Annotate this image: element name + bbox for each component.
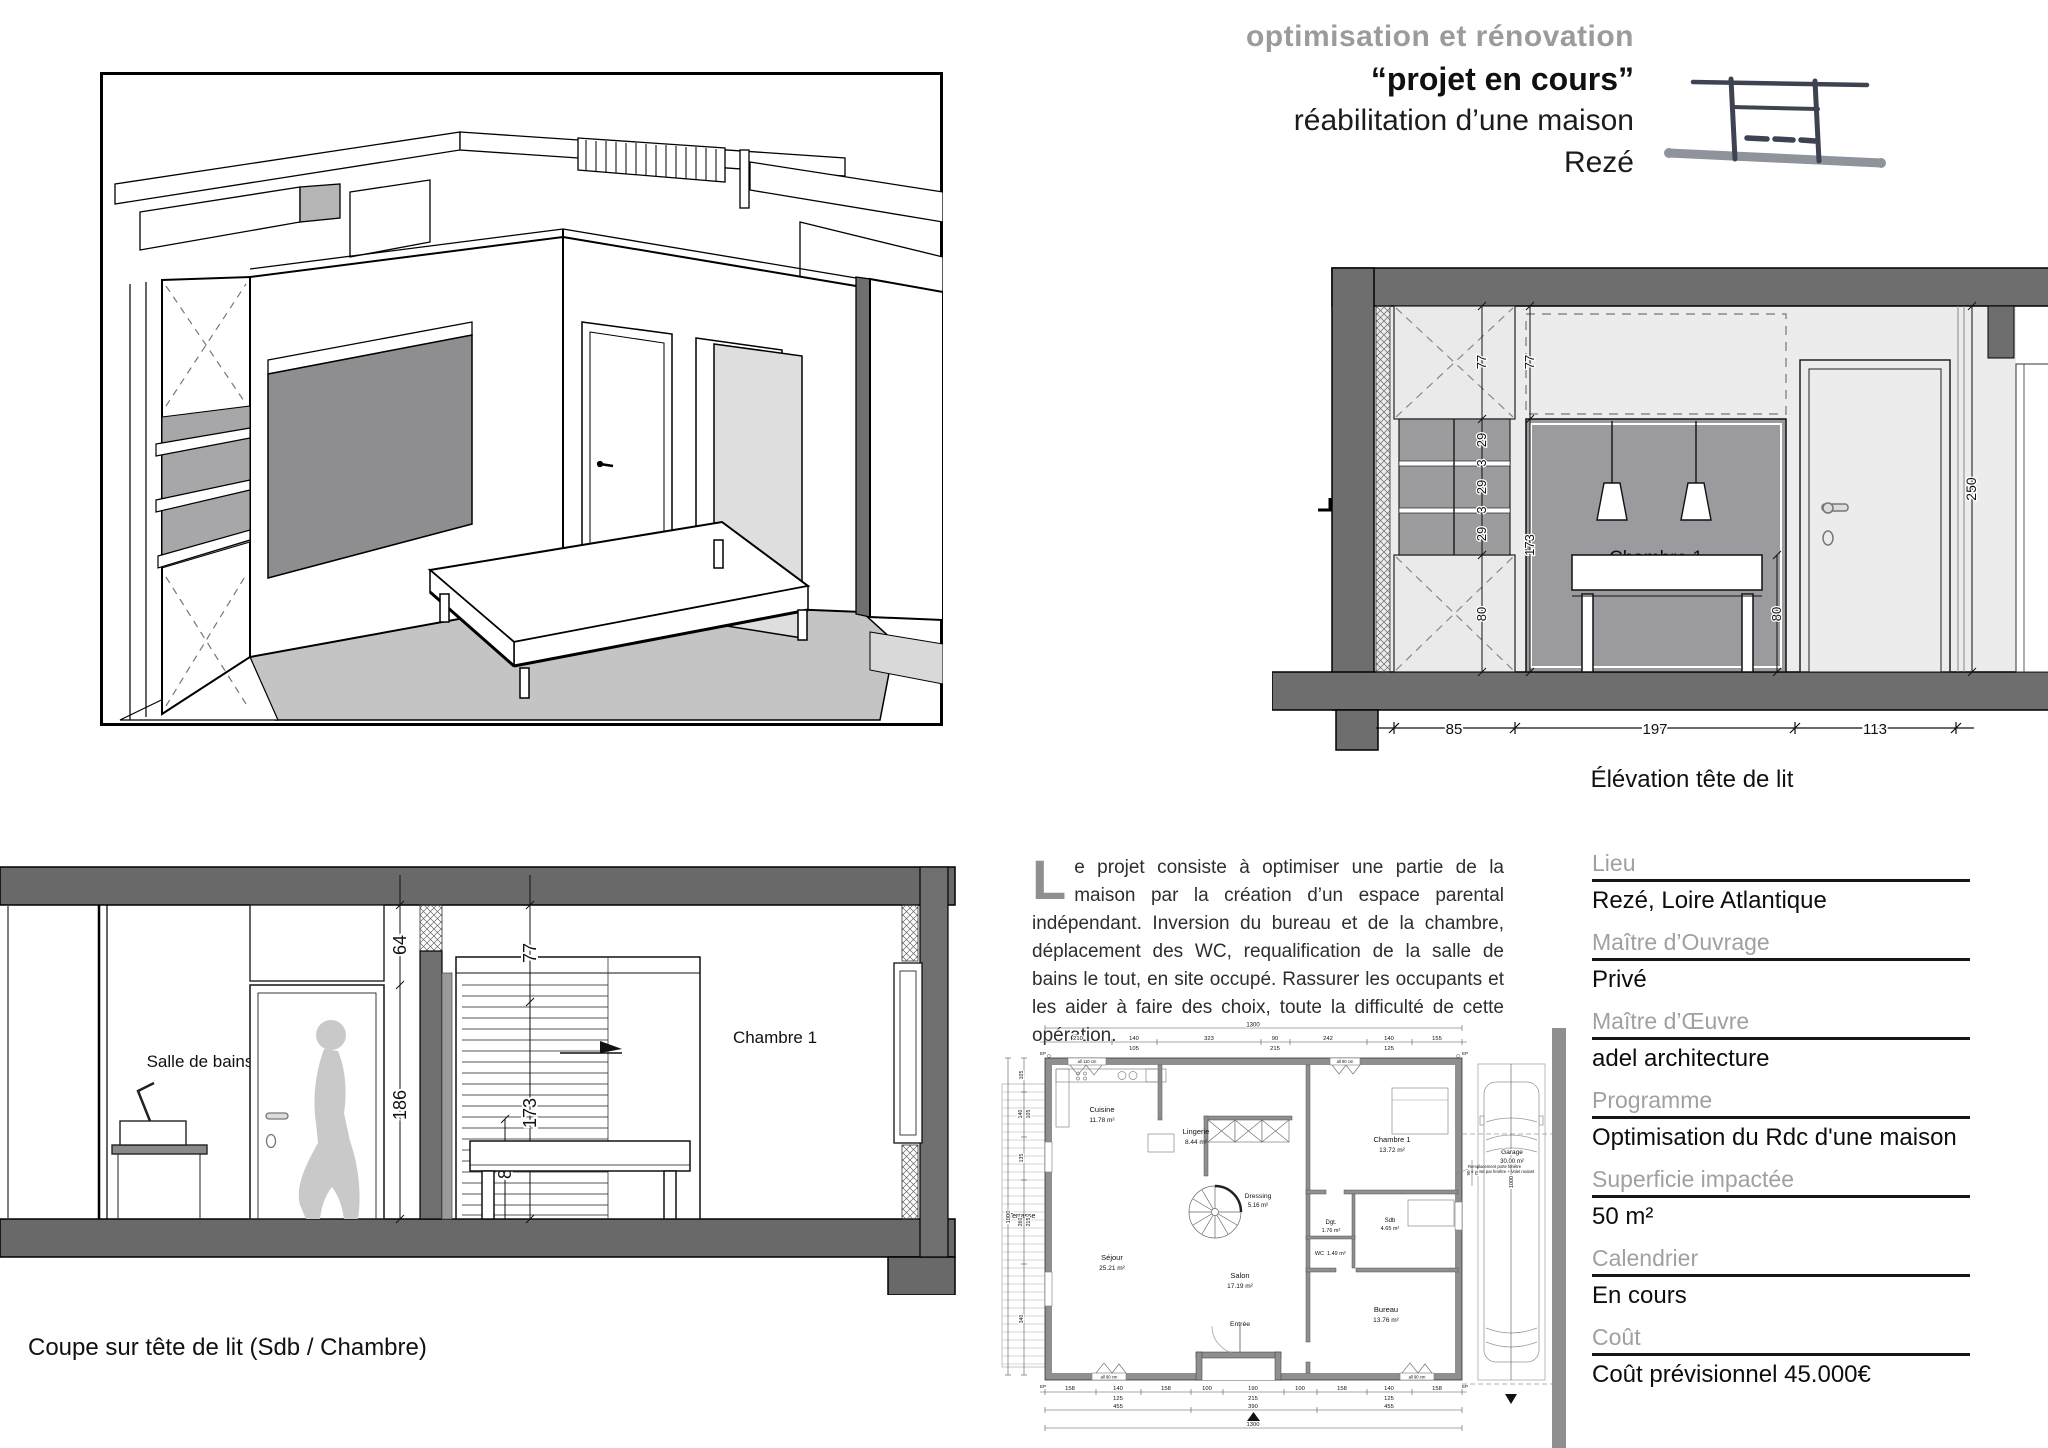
dim: 125 bbox=[1384, 1396, 1394, 1402]
dim: 113 bbox=[1863, 721, 1887, 738]
portfolio-page: { "header": { "line1": "optimisation et … bbox=[0, 0, 2048, 1448]
section-drawing: Salle de bains 64 186 bbox=[0, 845, 958, 1295]
floor-plan: 1000 Remplacement porte fenêtre existant… bbox=[1000, 1022, 1560, 1448]
room-name: Garage bbox=[1501, 1149, 1523, 1156]
info-label: Maître d’Ouvrage bbox=[1592, 929, 1970, 961]
room-name: Entrée bbox=[1230, 1321, 1250, 1328]
info-value: Privé bbox=[1592, 966, 1970, 994]
elevation-drawing: Chambre 1 77 29 3 29 3 29 80 77 173 bbox=[1272, 258, 2048, 758]
room-area: 17.19 m² bbox=[1227, 1283, 1253, 1290]
info-label: Calendrier bbox=[1592, 1245, 1970, 1277]
dim: 105 bbox=[1129, 1046, 1139, 1052]
dim: 90 bbox=[1272, 1036, 1278, 1042]
dim: 75 bbox=[1474, 1170, 1479, 1176]
window-note: all 90 cm bbox=[1337, 1059, 1354, 1064]
room-name: Bureau bbox=[1374, 1305, 1398, 1314]
room-name: Lingerie bbox=[1183, 1127, 1210, 1136]
info-item-superficie: Superficie impactée 50 m² bbox=[1592, 1166, 1970, 1231]
dim: 323 bbox=[1204, 1036, 1214, 1042]
room-name: WC bbox=[1315, 1251, 1324, 1257]
description-text: e projet consiste à optimiser une partie… bbox=[1032, 857, 1504, 1046]
dim: 90 bbox=[1466, 1170, 1471, 1176]
dim: 100 bbox=[1295, 1386, 1305, 1392]
dim: 173 bbox=[520, 1098, 540, 1128]
dim: 125 bbox=[1113, 1396, 1123, 1402]
info-value: En cours bbox=[1592, 1282, 1970, 1310]
ep-label: EP bbox=[1462, 1051, 1468, 1056]
room-area: 13.76 m² bbox=[1373, 1317, 1399, 1324]
project-info-list: Lieu Rezé, Loire Atlantique Maître d’Ouv… bbox=[1592, 850, 1970, 1403]
room-area: 1.49 m² bbox=[1327, 1251, 1346, 1257]
title-block: optimisation et rénovation “projet en co… bbox=[900, 16, 1634, 184]
ep-label: EP bbox=[1040, 1051, 1046, 1056]
dim: 390 bbox=[1248, 1404, 1258, 1410]
info-value: Coût prévisionnel 45.000€ bbox=[1592, 1361, 1970, 1389]
room-area: 1.76 m² bbox=[1322, 1228, 1341, 1234]
dim: 77 bbox=[1522, 355, 1537, 369]
dim: 140 bbox=[1018, 1110, 1024, 1119]
room-name: Salon bbox=[1230, 1271, 1249, 1280]
info-label: Coût bbox=[1592, 1324, 1970, 1356]
title-line-2: “projet en cours” bbox=[900, 58, 1634, 100]
title-line-1: optimisation et rénovation bbox=[900, 16, 1634, 58]
window-note: all 90 cm bbox=[1101, 1375, 1118, 1380]
info-value: Rezé, Loire Atlantique bbox=[1592, 887, 1970, 915]
info-label: Programme bbox=[1592, 1087, 1970, 1119]
info-item-programme: Programme Optimisation du Rdc d'une mais… bbox=[1592, 1087, 1970, 1152]
title-line-4: Rezé bbox=[900, 142, 1634, 184]
dim: 1000 bbox=[1006, 1211, 1012, 1224]
room-name: Dgt. bbox=[1325, 1220, 1336, 1226]
info-value: Optimisation du Rdc d'une maison bbox=[1592, 1124, 1970, 1152]
dim: 140 bbox=[1129, 1036, 1139, 1042]
dim: 250 bbox=[1963, 477, 1979, 501]
dim: 158 bbox=[1432, 1386, 1442, 1392]
dim: 80 bbox=[1769, 607, 1784, 621]
dim: 1300 bbox=[1246, 1023, 1260, 1029]
vertical-divider bbox=[1552, 1028, 1566, 1448]
dim: 155 bbox=[1432, 1036, 1442, 1042]
dim: 3 bbox=[1474, 459, 1489, 466]
dim: 100 bbox=[1202, 1386, 1212, 1392]
dim: 190 bbox=[1248, 1386, 1258, 1392]
dim: 215 bbox=[1026, 1218, 1032, 1227]
dim: 215 bbox=[1248, 1396, 1258, 1402]
room-name: Sdb bbox=[1385, 1218, 1396, 1224]
dim: 197 bbox=[1642, 721, 1667, 738]
room-name: Séjour bbox=[1101, 1253, 1123, 1262]
perspective-render bbox=[100, 72, 943, 726]
ep-label: EP bbox=[1462, 1384, 1468, 1389]
dim: 1000 bbox=[1509, 1176, 1515, 1188]
dim: 105 bbox=[1026, 1110, 1032, 1119]
info-item-calendrier: Calendrier En cours bbox=[1592, 1245, 1970, 1310]
room-name: Chambre 1 bbox=[1373, 1135, 1410, 1144]
info-item-maitre-oeuvre: Maître d’Œuvre adel architecture bbox=[1592, 1008, 1970, 1073]
dim: 158 bbox=[1065, 1386, 1075, 1392]
title-line-3: réabilitation d’une maison bbox=[900, 100, 1634, 142]
dim: 85 bbox=[1446, 721, 1463, 738]
dim: 215 bbox=[1270, 1046, 1280, 1052]
dim: 125 bbox=[1384, 1046, 1394, 1052]
window-note: all 110 cm bbox=[1078, 1059, 1097, 1064]
headboard-sketch-logo bbox=[1655, 45, 1905, 180]
dim: 455 bbox=[1113, 1404, 1123, 1410]
dim: 186 bbox=[390, 1090, 410, 1120]
info-item-cout: Coût Coût prévisionnel 45.000€ bbox=[1592, 1324, 1970, 1389]
dim: 29 bbox=[1474, 433, 1489, 447]
info-label: Maître d’Œuvre bbox=[1592, 1008, 1970, 1040]
dim: 158 bbox=[1337, 1386, 1347, 1392]
dim: 3 bbox=[1474, 506, 1489, 513]
room-area: 25.21 m² bbox=[1099, 1265, 1125, 1272]
window-note: all 90 cm bbox=[1409, 1375, 1426, 1380]
dim: 340 bbox=[1019, 1315, 1025, 1324]
dim: 29 bbox=[1474, 480, 1489, 494]
dim: 455 bbox=[1384, 1404, 1394, 1410]
room-area: 4.65 m² bbox=[1381, 1226, 1400, 1232]
info-item-maitre-ouvrage: Maître d’Ouvrage Privé bbox=[1592, 929, 1970, 994]
info-item-lieu: Lieu Rezé, Loire Atlantique bbox=[1592, 850, 1970, 915]
dim: 77 bbox=[1474, 355, 1489, 369]
info-label: Lieu bbox=[1592, 850, 1970, 882]
room-area: 5.16 m² bbox=[1248, 1203, 1268, 1209]
section-caption: Coupe sur tête de lit (Sdb / Chambre) bbox=[28, 1334, 427, 1362]
dim: 140 bbox=[1384, 1036, 1394, 1042]
info-value: adel architecture bbox=[1592, 1045, 1970, 1073]
dim: 80 bbox=[1474, 607, 1489, 621]
project-description: Le projet consiste à optimiser une parti… bbox=[1032, 854, 1504, 1050]
dim: 29 bbox=[1474, 527, 1489, 541]
info-label: Superficie impactée bbox=[1592, 1166, 1970, 1198]
room-area: 30.00 m² bbox=[1500, 1159, 1524, 1165]
drop-cap: L bbox=[1032, 857, 1066, 903]
dim: 173 bbox=[1522, 534, 1537, 556]
dim: 140 bbox=[1113, 1386, 1123, 1392]
room-area: 13.72 m² bbox=[1379, 1147, 1405, 1154]
dim: 242 bbox=[1323, 1036, 1333, 1042]
dim: 140 bbox=[1384, 1386, 1394, 1392]
section-bath-label: Salle de bains bbox=[147, 1052, 254, 1071]
section-room-label: Chambre 1 bbox=[733, 1028, 817, 1047]
room-name: Cuisine bbox=[1089, 1105, 1114, 1114]
dim: 260 bbox=[1018, 1218, 1024, 1227]
room-name: Dressing bbox=[1245, 1193, 1272, 1200]
dim: 105 bbox=[1019, 1071, 1025, 1080]
dim: 1300 bbox=[1247, 1422, 1260, 1428]
dim: 210 bbox=[1073, 1036, 1083, 1042]
room-area: 11.78 m² bbox=[1089, 1117, 1115, 1124]
dim: 158 bbox=[1161, 1386, 1171, 1392]
dim: 64 bbox=[390, 935, 410, 955]
ep-label: EP bbox=[1040, 1384, 1046, 1389]
dim: 135 bbox=[1019, 1154, 1025, 1163]
info-value: 50 m² bbox=[1592, 1203, 1970, 1231]
dim: 77 bbox=[520, 943, 540, 963]
elevation-caption: Élévation tête de lit bbox=[1492, 766, 1892, 794]
room-area: 8.44 m² bbox=[1185, 1139, 1208, 1146]
